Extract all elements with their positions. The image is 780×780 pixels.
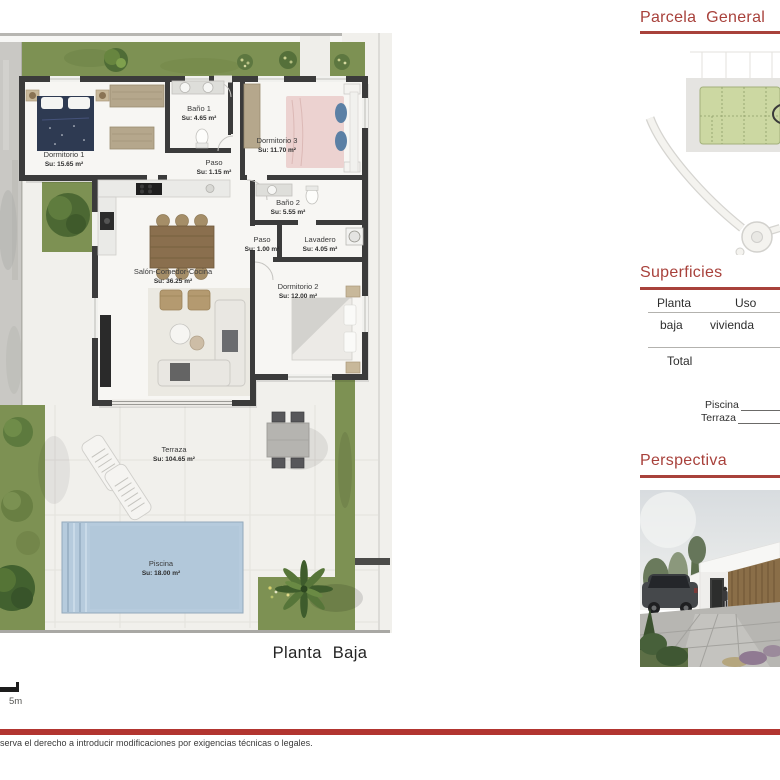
top-path [0,36,342,42]
salon-glass-door [112,400,232,407]
svg-text:Lavadero: Lavadero [304,235,335,244]
svg-text:Paso: Paso [253,235,270,244]
flower-bush-2 [279,51,297,69]
terraza-label: Terraza [701,412,736,424]
svg-text:Su: 5.55 m²: Su: 5.55 m² [271,209,307,216]
plot-grid-upper [690,52,780,80]
perspectiva-rule [640,475,780,478]
svg-text:Salón-Comedor-Cocina: Salón-Comedor-Cocina [134,267,213,276]
superficies-title: Superficies [640,264,780,282]
road-island [736,248,744,255]
parcela-general-title: Parcela General [640,9,780,27]
parcela-map [640,40,780,255]
parcel-green-block [700,87,780,144]
garden-top [22,36,365,79]
svg-text:Baño 2: Baño 2 [276,198,300,207]
scale-label: 5m [9,696,22,707]
car [642,574,698,614]
furniture-lavadero [346,228,363,245]
svg-text:Dormitorio 3: Dormitorio 3 [257,136,298,145]
footer-disclaimer: serva el derecho a introducir modificaci… [0,738,700,748]
svg-text:Su: 18.00 m²: Su: 18.00 m² [142,570,181,577]
svg-text:Su: 36.25 m²: Su: 36.25 m² [154,278,193,285]
top-boundary-wall [0,33,342,36]
superficies-col-uso: Uso [735,296,756,310]
svg-text:Su: 4.65 m²: Su: 4.65 m² [182,115,218,122]
svg-text:Paso: Paso [205,158,222,167]
terraza-fill-row: Terraza [701,412,780,424]
svg-text:Terraza: Terraza [161,445,187,454]
bottom-boundary-wall [0,630,390,633]
svg-text:Su: 12.00 m²: Su: 12.00 m² [279,293,318,300]
roundabout-center [752,232,763,243]
svg-text:Su: 11.70 m²: Su: 11.70 m² [258,147,297,154]
floorplan-drawing: Dormitorio 1 Su: 15.65 m² Baño 1 Su: 4.6… [0,0,400,660]
perspectiva-title: Perspectiva [640,452,780,470]
parcela-general-rule [640,31,780,34]
svg-text:Su: 15.65 m²: Su: 15.65 m² [45,161,84,168]
svg-text:Su: 4.05 m²: Su: 4.05 m² [303,246,339,253]
svg-text:Piscina: Piscina [149,559,174,568]
piscina-label: Piscina [705,399,739,411]
superficies-total-line [648,347,780,348]
flower-bush-3 [334,54,350,70]
svg-text:Baño 1: Baño 1 [187,104,211,113]
superficies-col-planta: Planta [657,296,691,310]
plan-title: Planta Baja [245,644,395,663]
footer-red-bar [0,729,780,735]
scale-bar-tick [16,682,19,692]
palm-tree [275,560,333,618]
superficies-row-planta: baja [660,318,683,332]
superficies-rule [640,287,780,290]
entrance-path [300,36,330,79]
garden-patch-left [42,182,95,252]
superficies-total-label: Total [667,354,692,368]
svg-text:Dormitorio 1: Dormitorio 1 [44,150,85,159]
piscina-fill-row: Piscina [705,399,780,411]
svg-text:Su: 104.65 m²: Su: 104.65 m² [153,456,196,463]
plan-sheet-page: Dormitorio 1 Su: 15.65 m² Baño 1 Su: 4.6… [0,0,780,780]
tree-top [104,48,128,72]
svg-text:Su: 1.15 m²: Su: 1.15 m² [197,169,233,176]
svg-text:Su: 1.00 m²: Su: 1.00 m² [245,246,281,253]
superficies-header-line [648,312,780,313]
flower-bush-1 [237,54,253,70]
svg-text:Dormitorio 2: Dormitorio 2 [278,282,319,291]
sun-glow [640,492,696,548]
right-boundary-line [378,33,380,633]
terraza-fill-line [738,414,780,424]
superficies-row-uso: vivienda [710,318,754,332]
perspectiva-render [640,490,780,667]
piscina-fill-line [741,401,780,411]
